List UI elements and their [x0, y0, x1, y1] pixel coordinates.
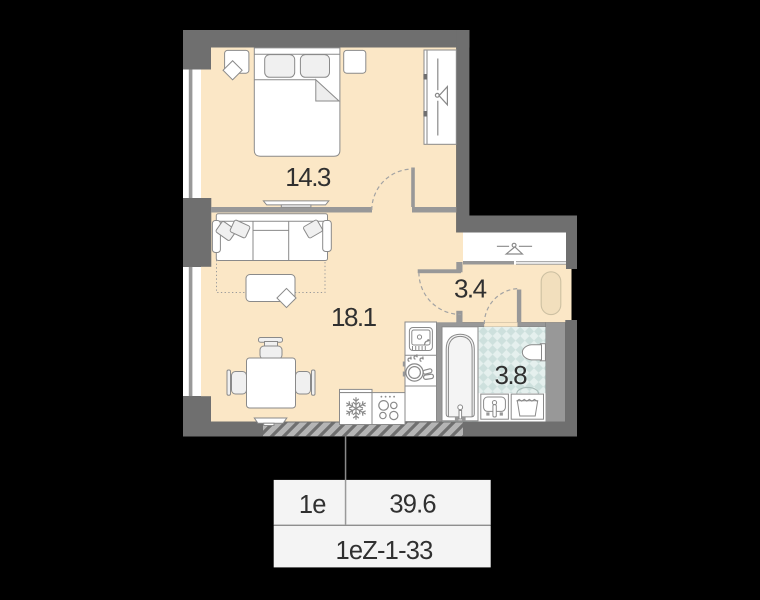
svg-text:18.1: 18.1	[331, 302, 377, 332]
svg-text:1eZ-1-33: 1eZ-1-33	[335, 537, 433, 565]
svg-text:14.3: 14.3	[285, 162, 331, 192]
svg-text:3.4: 3.4	[454, 274, 487, 304]
svg-text:3.8: 3.8	[494, 360, 527, 390]
svg-text:1e: 1e	[299, 491, 326, 519]
svg-text:39.6: 39.6	[389, 491, 436, 519]
